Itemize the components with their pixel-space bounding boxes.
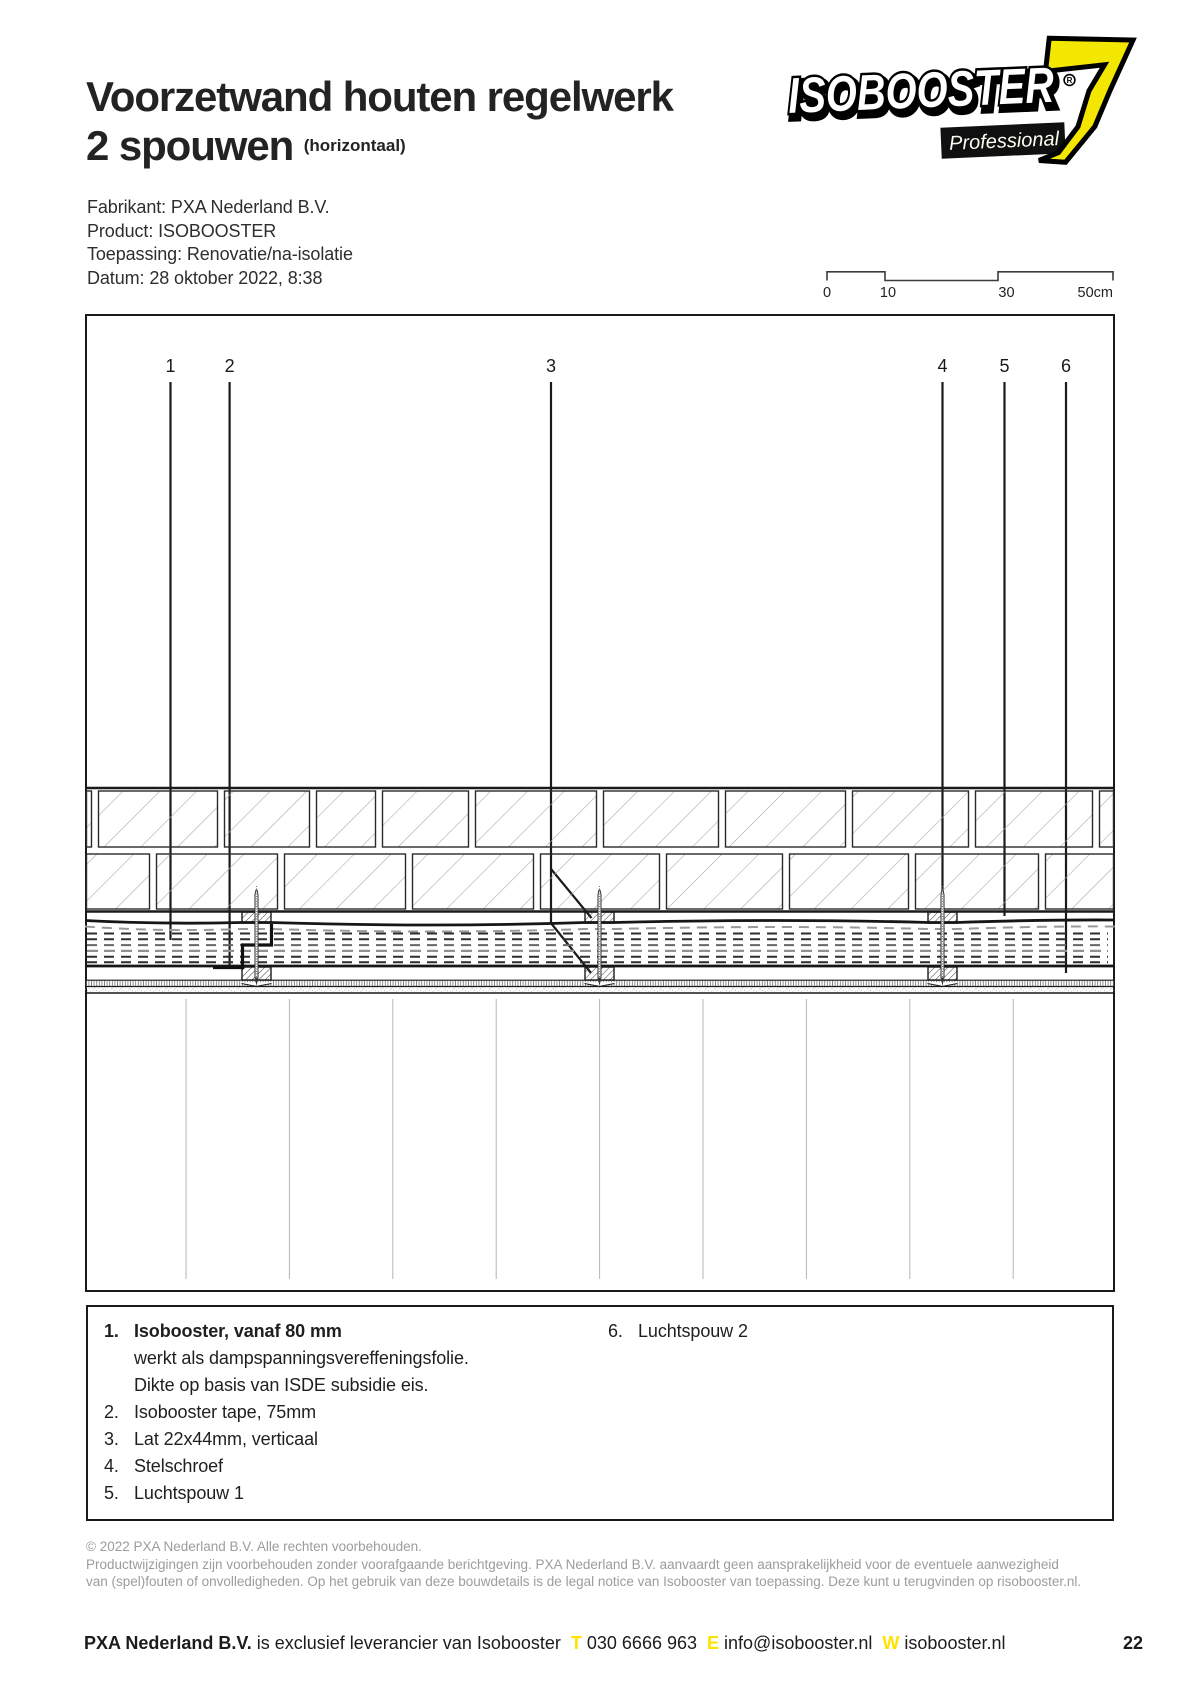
svg-text:30: 30 bbox=[998, 285, 1014, 301]
svg-text:10: 10 bbox=[880, 285, 896, 301]
svg-text:50cm: 50cm bbox=[1078, 285, 1113, 301]
svg-text:0: 0 bbox=[823, 285, 831, 301]
svg-text:5: 5 bbox=[999, 356, 1009, 376]
svg-text:4: 4 bbox=[937, 356, 947, 376]
svg-text:3: 3 bbox=[546, 356, 556, 376]
svg-text:R: R bbox=[1067, 76, 1073, 85]
svg-text:6: 6 bbox=[1061, 356, 1071, 376]
svg-text:ISOBOOSTER: ISOBOOSTER bbox=[787, 57, 1055, 124]
svg-text:2: 2 bbox=[225, 356, 235, 376]
svg-text:1: 1 bbox=[165, 356, 175, 376]
